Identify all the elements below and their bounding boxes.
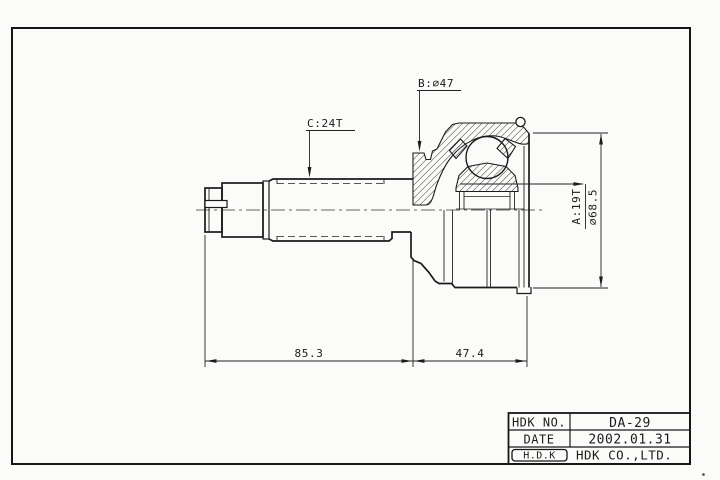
ink-speck (702, 473, 705, 476)
boot-band-exterior (517, 287, 531, 294)
snap-ring-groove (205, 201, 227, 208)
title-block: HDK NO. DA-29 DATE 2002.01.31 H.D.K HDK … (509, 413, 691, 464)
leader-arrowhead (418, 141, 422, 152)
dim-text-a19t: A:19T (570, 188, 583, 224)
spline-top-edge (269, 179, 413, 181)
drawing-sheet: 85.3 47.4 A:19T ∅68.5 C:24T B:∅47 HDK NO… (0, 0, 720, 480)
dim-arrowhead (414, 359, 425, 363)
dim-arrowhead (206, 359, 217, 363)
cv-joint-bell-section (413, 117, 529, 287)
label-c-24t: C:24T (306, 117, 355, 178)
leader-arrowhead (574, 182, 585, 186)
hdk-logo-text: H.D.K (523, 451, 556, 462)
inner-race-section (456, 163, 518, 192)
dim-arrowhead (402, 359, 413, 363)
dim-text-47-4: 47.4 (456, 347, 485, 360)
title-block-value-part-no: DA-29 (609, 416, 651, 431)
dim-text-c24t: C:24T (307, 117, 343, 130)
title-block-value-date: 2002.01.31 (588, 433, 671, 448)
title-block-company-name: HDK CO.,LTD. (576, 448, 672, 463)
dim-text-85-3: 85.3 (295, 347, 324, 360)
dimension-lengths: 85.3 47.4 (205, 235, 527, 367)
boot-band-ring-section (516, 117, 525, 126)
dim-arrowhead (599, 134, 603, 145)
drawing-canvas: 85.3 47.4 A:19T ∅68.5 C:24T B:∅47 HDK NO… (0, 0, 720, 480)
bell-lower-profile (411, 232, 517, 288)
dim-text-b47: B:∅47 (418, 77, 454, 90)
dim-text-dia-68-5: ∅68.5 (587, 189, 600, 225)
dim-arrowhead (599, 277, 603, 288)
title-block-label-date: DATE (524, 433, 555, 447)
leader-arrowhead (308, 167, 312, 178)
sheet-frame (12, 28, 690, 464)
title-block-label-hdk-no: HDK NO. (512, 416, 566, 430)
cv-joint-bell-exterior (411, 210, 531, 294)
dim-arrowhead (516, 359, 527, 363)
